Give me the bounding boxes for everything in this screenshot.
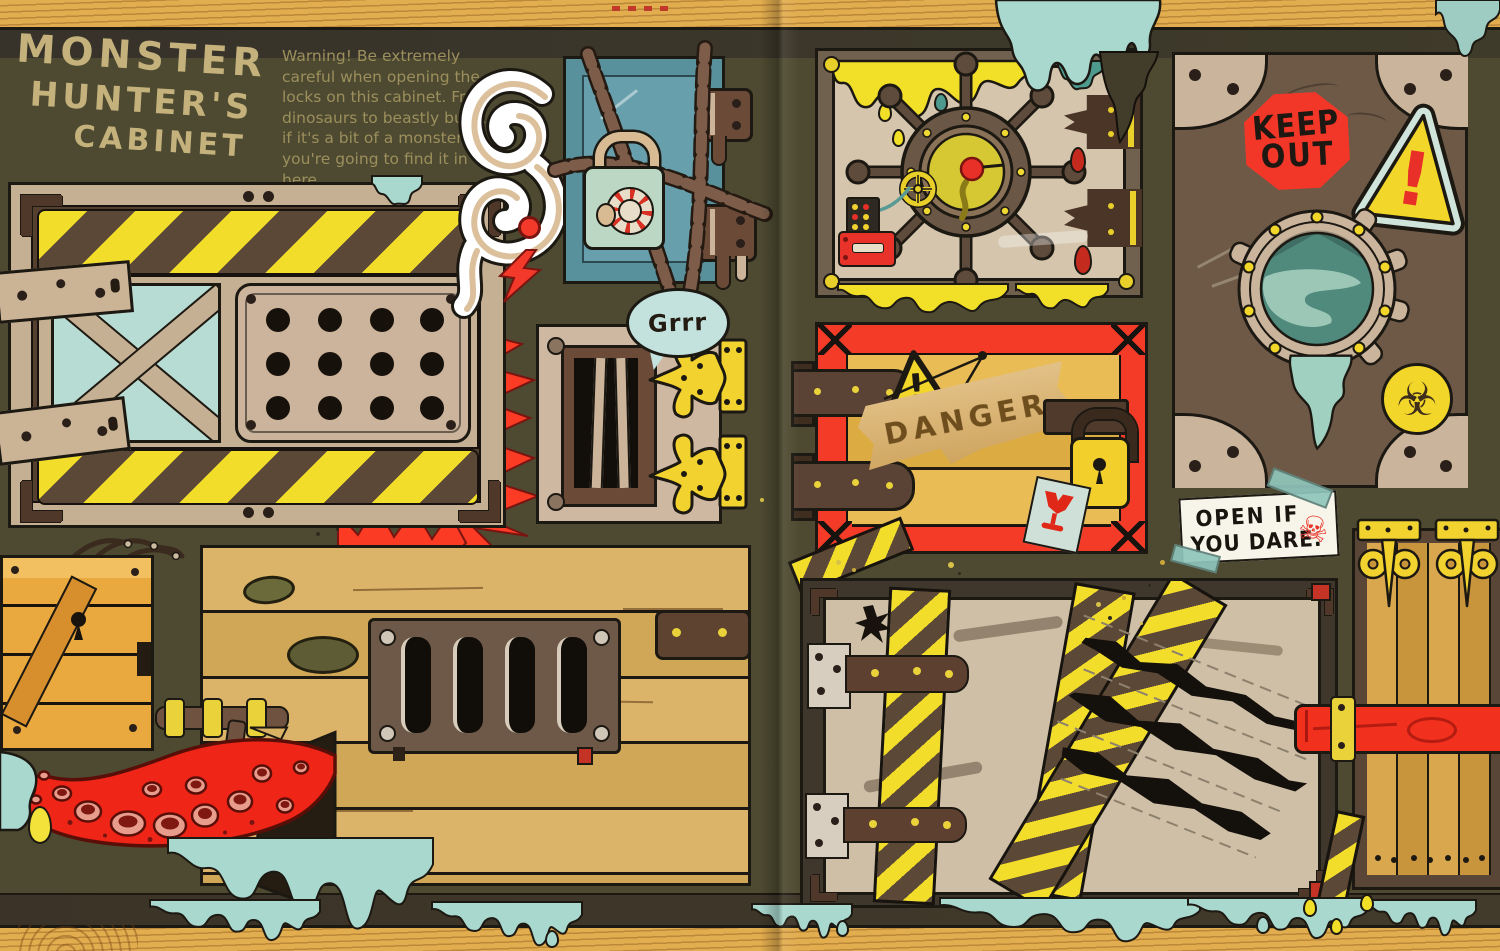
speck xyxy=(958,572,961,575)
bar-end-line xyxy=(1305,710,1308,742)
red-drip xyxy=(1070,147,1086,173)
strap-hinge xyxy=(845,655,969,693)
slime-drip-cluster xyxy=(150,900,320,950)
vent-foot xyxy=(393,747,405,761)
biohazard-sign: ☣ xyxy=(1381,363,1453,435)
red-lightning-icon xyxy=(500,250,544,304)
vent-hole xyxy=(318,352,342,376)
yellow-droplet xyxy=(1330,918,1343,935)
hazard-tape-piece-outside xyxy=(790,538,906,574)
padlock-dial-center xyxy=(618,199,642,223)
vent-plate-slotted xyxy=(368,618,621,754)
bar-grain xyxy=(1407,717,1457,743)
growl-text: Grrr xyxy=(648,308,708,338)
corner-bracket xyxy=(811,589,837,615)
crate-latch xyxy=(137,642,151,676)
wood-knot xyxy=(287,636,359,674)
corner-bracket xyxy=(21,195,62,236)
padlock-icon xyxy=(583,166,665,250)
broken-glass-icon xyxy=(1028,481,1083,545)
corner-plate xyxy=(1175,413,1268,488)
corner-screw xyxy=(1118,273,1135,290)
yellow-slime-drip-bottom xyxy=(1016,284,1108,314)
vent-slot xyxy=(557,637,587,733)
bar-bracket xyxy=(1330,696,1356,762)
hinge-pin-stripe xyxy=(1130,191,1136,245)
speech-bubble: Grrr xyxy=(626,288,730,358)
speck xyxy=(336,528,339,531)
vent-hole xyxy=(266,396,290,420)
scroll-hinge-icon xyxy=(1434,518,1500,612)
vent-hole xyxy=(370,352,394,376)
speck xyxy=(948,562,954,568)
red-bar xyxy=(1294,704,1500,754)
vent-hole xyxy=(266,352,290,376)
vent-hole xyxy=(318,396,342,420)
title-block: MONSTER HUNTER'S CABINET xyxy=(10,26,268,165)
porthole-slime-drip xyxy=(1285,353,1357,453)
card-reader xyxy=(838,231,896,267)
board-keyslot xyxy=(110,278,120,293)
vent-hole xyxy=(370,308,394,332)
card-slot xyxy=(852,243,884,253)
window-frame xyxy=(561,345,657,507)
slime-drip-cluster xyxy=(1366,900,1476,944)
strap-hinge xyxy=(655,610,751,660)
crate-door xyxy=(0,555,154,751)
vent-hole xyxy=(318,308,342,332)
strap-hinge xyxy=(843,807,967,843)
vent-hole xyxy=(370,396,394,420)
speck xyxy=(760,498,764,502)
keep-out-line2: OUT xyxy=(1260,137,1336,174)
vent-hole xyxy=(420,352,444,376)
bottom-wood-knot xyxy=(18,925,138,951)
slime-drip-top-right-corner xyxy=(1436,0,1500,64)
slime-drip-on-door-frame xyxy=(372,176,422,212)
dark-band-drip xyxy=(1100,52,1158,144)
x-corner-plate xyxy=(818,325,852,355)
speck xyxy=(1096,602,1101,607)
blue-droplet xyxy=(836,920,849,937)
hazard-door-top-left xyxy=(8,182,506,528)
vent-foot-red xyxy=(577,747,593,765)
vent-plate-12-holes xyxy=(235,283,471,443)
blue-droplet xyxy=(1256,916,1270,934)
ornate-hinge-icon xyxy=(646,430,750,518)
speck xyxy=(1160,560,1165,565)
corner-bracket xyxy=(459,481,500,522)
book-spread: MONSTER HUNTER'S CABINET Warning! Be ext… xyxy=(0,0,1500,951)
slime-drip-cluster xyxy=(940,898,1200,951)
porthole xyxy=(1227,199,1407,379)
red-drip xyxy=(1074,245,1092,275)
hazard-stripe-band-bottom xyxy=(37,449,479,505)
brown-door: KEEP OUT ! xyxy=(1172,52,1468,488)
yellow-drip xyxy=(28,806,52,844)
corner-bracket xyxy=(811,875,837,901)
speck xyxy=(316,532,320,536)
scroll-hinge-icon xyxy=(1356,518,1422,612)
speck xyxy=(1108,616,1112,620)
speck xyxy=(1140,622,1143,625)
scratched-door xyxy=(800,578,1338,908)
claw-scratches xyxy=(1038,641,1318,871)
red-dot xyxy=(518,216,541,239)
biohazard-icon: ☣ xyxy=(1396,376,1437,422)
crate-diagonal-brace xyxy=(1,575,98,727)
x-corner-plate xyxy=(1111,325,1145,355)
corner-screw xyxy=(823,56,840,73)
speck xyxy=(1122,596,1126,600)
grain-line xyxy=(353,587,483,591)
top-wood-red-marks xyxy=(612,6,672,11)
corner-bracket xyxy=(21,481,62,522)
red-corner-plate xyxy=(1311,583,1331,601)
chained-chest xyxy=(563,50,753,300)
speck xyxy=(836,560,841,565)
board-keyslot xyxy=(108,416,119,431)
dare-note-group: OPEN IF YOU DARE. ☠ xyxy=(1178,484,1352,573)
top-wood-border xyxy=(0,0,1500,30)
vent-hole xyxy=(420,396,444,420)
vent-slot xyxy=(401,637,431,733)
speck xyxy=(1148,584,1151,587)
vent-slot xyxy=(505,637,535,733)
blue-droplet xyxy=(545,930,559,948)
yellow-slime-drip-bottom xyxy=(838,284,1008,320)
padlock-knob xyxy=(596,203,616,227)
crate-top-plank-light xyxy=(3,558,151,578)
keep-out-sign: KEEP OUT xyxy=(1243,90,1352,191)
speck xyxy=(852,568,856,572)
wood-knot xyxy=(242,573,297,606)
yellow-droplet xyxy=(1303,898,1317,917)
danger-door: ! DANGER xyxy=(815,322,1148,554)
vent-hole xyxy=(266,308,290,332)
vent-slot xyxy=(453,637,483,733)
strap-hinge xyxy=(791,461,915,511)
slime-drip-cluster xyxy=(432,902,582,951)
x-corner-plate xyxy=(1111,521,1145,551)
yellow-droplet xyxy=(1360,894,1374,912)
